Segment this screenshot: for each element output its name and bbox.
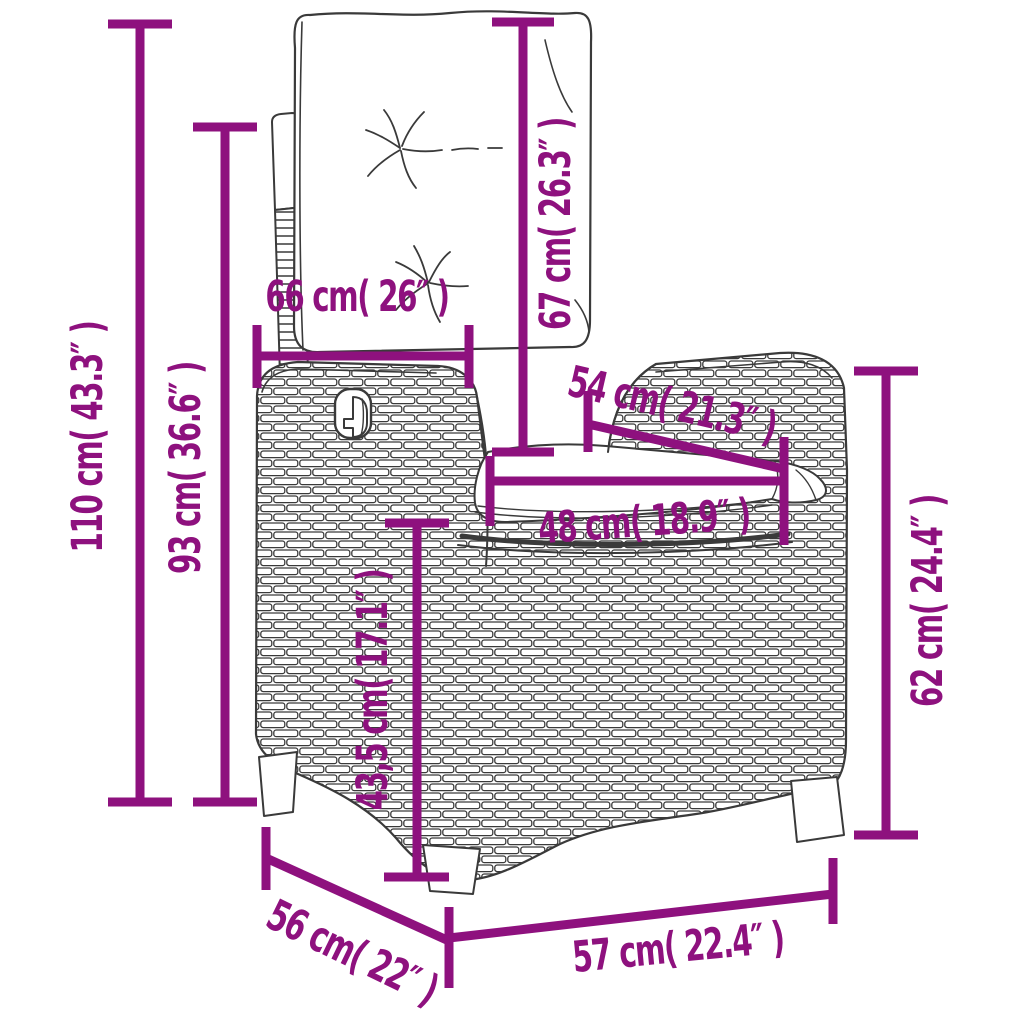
dimension-label-back-cushion-height: 67 cm( 26.3″ ) [531, 118, 581, 330]
leg-front-right [791, 777, 844, 842]
recline-knob [335, 389, 371, 438]
leg-front-left [423, 845, 480, 894]
dimension-diagram: 110 cm( 43.3″ ) 93 cm( 36.6″ ) 66 cm( 26… [0, 0, 1024, 1024]
dimension-label-backrest-width: 66 cm( 26″ ) [265, 272, 448, 322]
chair-illustration [0, 0, 1024, 1024]
dimension-label-armrest-height: 62 cm( 24.4″ ) [903, 495, 953, 707]
leg-back-left [259, 752, 297, 816]
dimension-label-backrest-height: 93 cm( 36.6″ ) [161, 362, 211, 574]
dimension-label-seat-height: 43,5 cm( 17.1″ ) [348, 570, 398, 811]
dimension-label-total-height: 110 cm( 43.3″ ) [63, 322, 113, 553]
